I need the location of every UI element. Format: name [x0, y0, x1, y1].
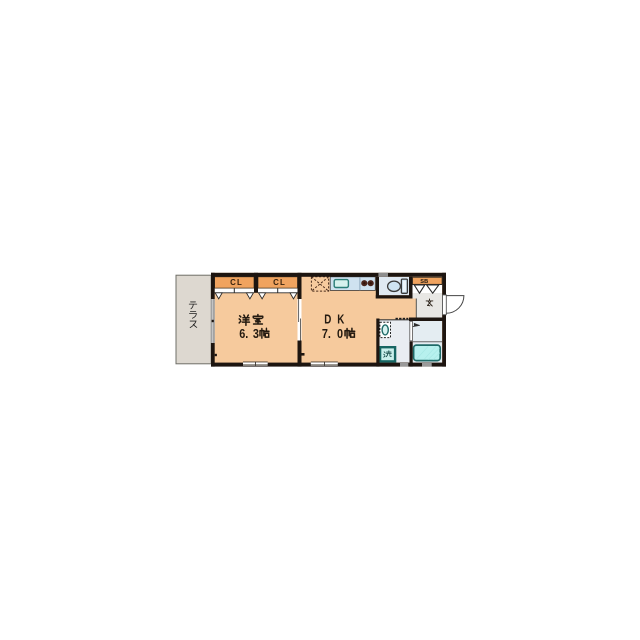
svg-text:0: 0 — [337, 326, 343, 341]
svg-text:7.: 7. — [322, 326, 331, 341]
svg-text:CL: CL — [230, 278, 243, 287]
svg-text:K: K — [337, 314, 345, 327]
svg-text:3: 3 — [253, 326, 259, 341]
svg-text:D: D — [324, 314, 331, 327]
svg-text:CL: CL — [273, 278, 286, 287]
svg-text:SB: SB — [420, 279, 428, 285]
svg-text:6.: 6. — [239, 326, 248, 341]
